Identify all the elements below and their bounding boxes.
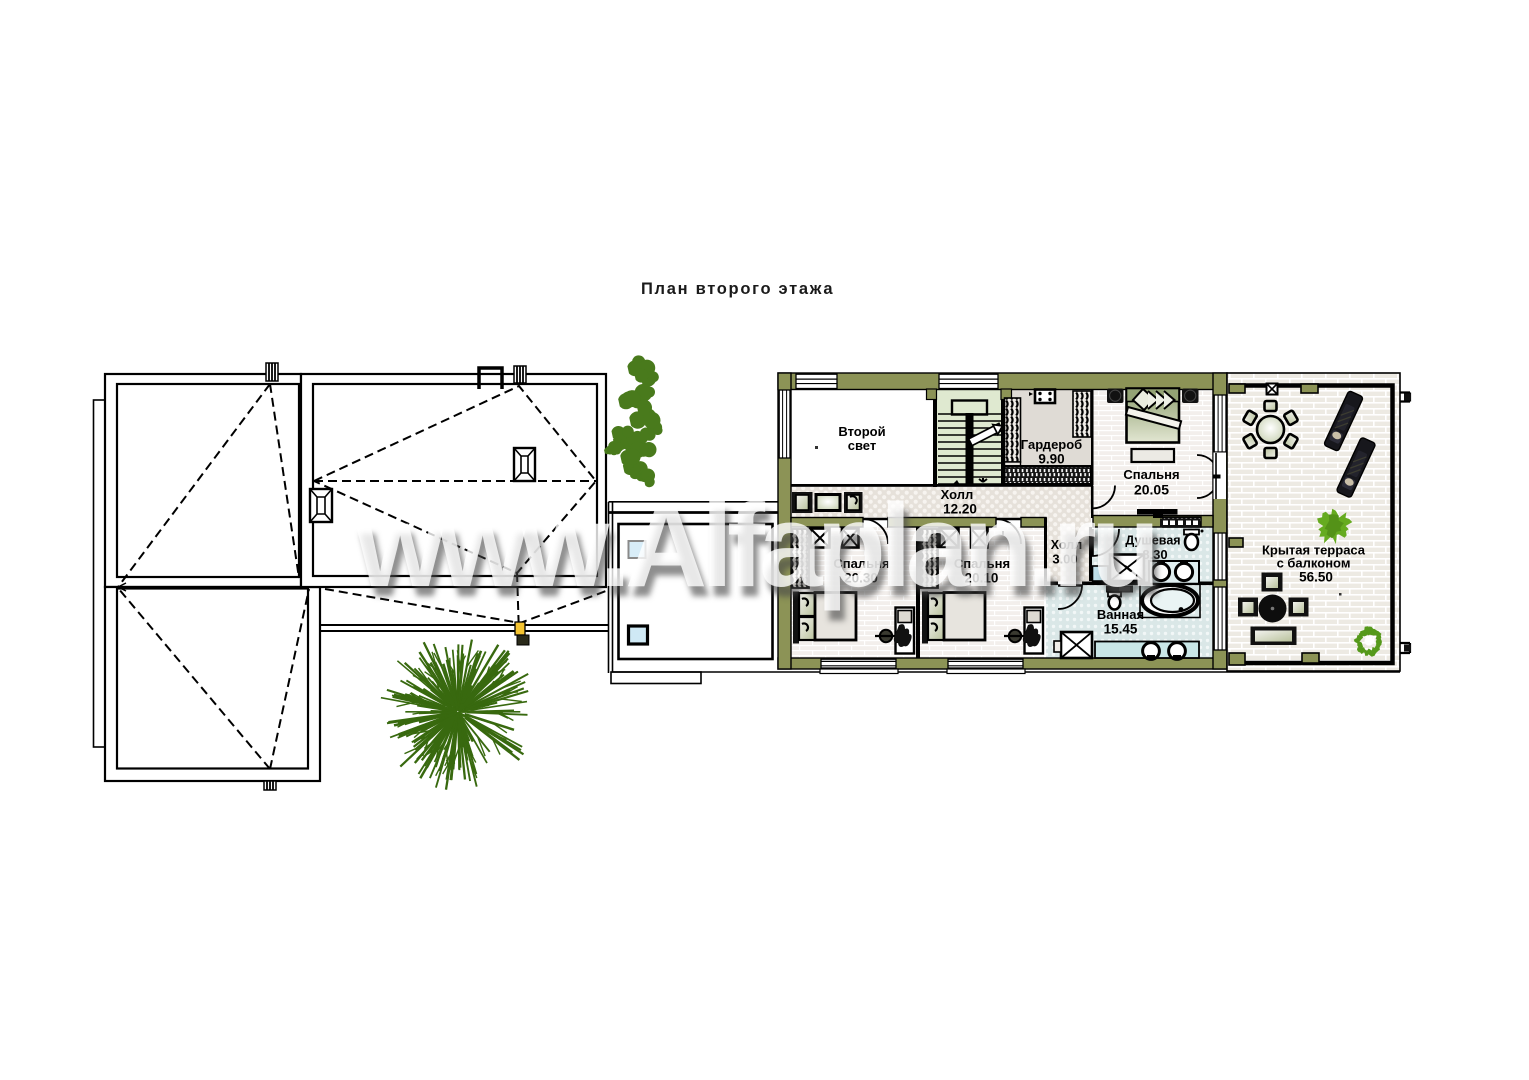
svg-text:Второй: Второй (838, 424, 885, 439)
svg-text:15.45: 15.45 (1104, 622, 1138, 637)
svg-text:9.90: 9.90 (1038, 452, 1064, 467)
svg-text:с балконом: с балконом (1277, 556, 1351, 571)
svg-text:Гардероб: Гардероб (1021, 437, 1082, 452)
svg-text:56.50: 56.50 (1299, 570, 1333, 585)
svg-text:План второго этажа: План второго этажа (641, 280, 834, 298)
svg-text:свет: свет (848, 438, 876, 453)
